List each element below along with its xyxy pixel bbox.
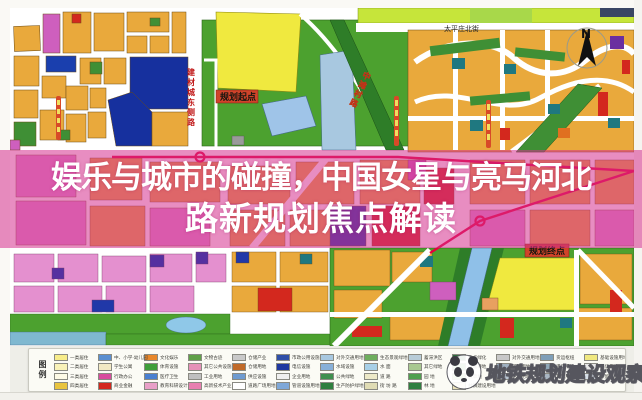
legend-label: 市政公用设施 bbox=[292, 354, 320, 360]
legend-column: 一类居住二类居住三类居住四类居住 bbox=[54, 354, 95, 390]
title-banner: 娱乐与城市的碰撞，中国女星与亮马河北 路新规划焦点解读 bbox=[0, 150, 642, 248]
legend-item: 管道设施用地 bbox=[276, 382, 317, 390]
legend-item: 三类居住 bbox=[54, 373, 95, 381]
legend-item: 供应设施 bbox=[232, 373, 273, 381]
legend-label: 水域设施 bbox=[336, 364, 354, 370]
legend-column: 蓄滞洪区其它绿地园 地林 地 bbox=[408, 354, 449, 390]
legend-label: 文物古迹 bbox=[204, 354, 222, 360]
legend-item: 行政办公 bbox=[98, 373, 141, 381]
legend-swatch bbox=[98, 363, 112, 371]
legend-swatch bbox=[408, 354, 422, 362]
legend-item: 公共绿地 bbox=[320, 373, 361, 381]
legend-label: 管道设施用地 bbox=[292, 383, 320, 389]
watermark-text: 地铁规划建设观察 bbox=[484, 358, 642, 387]
legend-item: 生态景观绿地 bbox=[364, 354, 405, 362]
legend-swatch bbox=[98, 354, 112, 362]
legend-label: 仓储产业 bbox=[248, 354, 266, 360]
legend-item: 体育设施 bbox=[144, 363, 185, 371]
legend-label: 其它公共设施 bbox=[204, 364, 232, 370]
legend-item: 水域设施 bbox=[320, 363, 361, 371]
legend-swatch bbox=[98, 382, 112, 390]
legend-swatch bbox=[188, 382, 202, 390]
legend-label: 学生公寓 bbox=[114, 364, 132, 370]
legend-swatch bbox=[276, 373, 290, 381]
start-point-label: 规划起点 bbox=[220, 91, 256, 103]
legend-swatch bbox=[144, 382, 158, 390]
legend-column: 市政公用设施电信设施企业用地管道设施用地 bbox=[276, 354, 317, 390]
legend-label: 工业用地 bbox=[204, 373, 222, 379]
road-jiancai-label: 建材城东侧路 bbox=[186, 67, 196, 128]
legend-item: 医疗卫生 bbox=[144, 373, 185, 381]
legend-swatch bbox=[364, 354, 378, 362]
legend-label: 道 路 bbox=[380, 373, 391, 379]
map-parcels-top-right bbox=[408, 30, 634, 152]
legend-swatch bbox=[54, 373, 68, 381]
legend-swatch bbox=[54, 354, 68, 362]
legend-label: 商业金融 bbox=[114, 383, 132, 389]
legend-swatch bbox=[408, 363, 422, 371]
legend-swatch bbox=[232, 354, 246, 362]
legend-item: 林 地 bbox=[408, 382, 449, 390]
legend-item: 四类居住 bbox=[54, 382, 95, 390]
legend-swatch bbox=[54, 382, 68, 390]
legend-label: 中、小学·幼儿园 bbox=[114, 354, 148, 360]
legend-label: 供应设施 bbox=[248, 373, 266, 379]
legend-swatch bbox=[98, 373, 112, 381]
legend-swatch bbox=[320, 354, 334, 362]
legend-column: 对外交通用地水域设施公共绿地生产防护绿地 bbox=[320, 354, 361, 390]
legend-item: 工业用地 bbox=[188, 373, 229, 381]
legend-item: 教育科研设计 bbox=[144, 382, 185, 390]
legend-swatch bbox=[364, 373, 378, 381]
legend-label: 生产防护绿地 bbox=[336, 383, 364, 389]
legend-item: 文物古迹 bbox=[188, 354, 229, 362]
legend-swatch bbox=[320, 373, 334, 381]
legend-swatch bbox=[364, 382, 378, 390]
watermark: 地铁规划建设观察 bbox=[444, 352, 642, 392]
legend-item: 二类居住 bbox=[54, 363, 95, 371]
map-parcels-bottom-middle bbox=[232, 252, 328, 312]
watermark-logo-icon bbox=[444, 352, 484, 392]
street-taipingzhuang-label: 太平庄北街 bbox=[444, 24, 479, 33]
legend-swatch bbox=[54, 363, 68, 371]
legend-item: 文化娱乐 bbox=[144, 354, 185, 362]
legend-item: 其它绿地 bbox=[408, 363, 449, 371]
legend-swatch bbox=[364, 363, 378, 371]
legend-swatch bbox=[188, 373, 202, 381]
legend-label: 高新技术产业 bbox=[204, 383, 232, 389]
legend-swatch bbox=[276, 382, 290, 390]
legend-item: 街 坊 路 bbox=[364, 382, 405, 390]
legend-label: 林 地 bbox=[424, 383, 435, 389]
legend-swatch bbox=[276, 363, 290, 371]
legend-item: 道路广场用地 bbox=[232, 382, 273, 390]
legend-label: 医疗卫生 bbox=[160, 373, 178, 379]
legend-item: 高新技术产业 bbox=[188, 382, 229, 390]
scan-margin-bottom bbox=[0, 392, 642, 400]
legend-label: 生态景观绿地 bbox=[380, 354, 408, 360]
legend-label: 一类居住 bbox=[70, 354, 88, 360]
title-line-1: 娱乐与城市的碰撞，中国女星与亮马河北 bbox=[51, 158, 591, 198]
legend-label: 企业用地 bbox=[292, 373, 310, 379]
legend-label: 仓储用地 bbox=[248, 364, 266, 370]
legend-label: 对外交通用地 bbox=[336, 354, 364, 360]
legend-item: 蓄滞洪区 bbox=[408, 354, 449, 362]
legend-title: 图例 bbox=[37, 360, 48, 380]
legend-label: 蓄滞洪区 bbox=[424, 354, 442, 360]
legend-label: 道路广场用地 bbox=[248, 383, 276, 389]
legend-swatch bbox=[188, 354, 202, 362]
legend-swatch bbox=[408, 373, 422, 381]
legend-label: 电信设施 bbox=[292, 364, 310, 370]
legend-label: 其它绿地 bbox=[424, 364, 442, 370]
map-parcels-bottom-right bbox=[330, 248, 634, 346]
legend-label: 三类居住 bbox=[70, 373, 88, 379]
legend-label: 文化娱乐 bbox=[160, 354, 178, 360]
legend-swatch bbox=[188, 363, 202, 371]
legend-item: 道 路 bbox=[364, 373, 405, 381]
legend-item: 电信设施 bbox=[276, 363, 317, 371]
legend-label: 教育科研设计 bbox=[160, 383, 188, 389]
legend-item: 其它公共设施 bbox=[188, 363, 229, 371]
legend-label: 四类居住 bbox=[70, 383, 88, 389]
legend-column: 生态景观绿地水 面道 路街 坊 路 bbox=[364, 354, 405, 390]
legend-item: 一类居住 bbox=[54, 354, 95, 362]
legend-column: 中、小学·幼儿园学生公寓行政办公商业金融 bbox=[98, 354, 141, 390]
legend-label: 行政办公 bbox=[114, 373, 132, 379]
title-line-2: 路新规划焦点解读 bbox=[185, 198, 457, 240]
legend-item: 企业用地 bbox=[276, 373, 317, 381]
legend-swatch bbox=[232, 363, 246, 371]
legend-column: 文物古迹其它公共设施工业用地高新技术产业 bbox=[188, 354, 229, 390]
legend-item: 对外交通用地 bbox=[320, 354, 361, 362]
scan-margin-top bbox=[0, 0, 642, 8]
legend-item: 仓储用地 bbox=[232, 363, 273, 371]
legend-label: 街 坊 路 bbox=[380, 383, 397, 389]
legend-label: 公共绿地 bbox=[336, 373, 354, 379]
legend-swatch bbox=[144, 373, 158, 381]
screenshot-stage: 规划起点 规划终点 太平庄北街 建材城东侧路 中滩村路 N 娱乐与城市的碰撞，中… bbox=[0, 0, 642, 400]
legend-column: 文化娱乐体育设施医疗卫生教育科研设计 bbox=[144, 354, 185, 390]
legend-item: 中、小学·幼儿园 bbox=[98, 354, 141, 362]
legend-item: 商业金融 bbox=[98, 382, 141, 390]
legend-column: 仓储产业仓储用地供应设施道路广场用地 bbox=[232, 354, 273, 390]
legend-swatch bbox=[232, 382, 246, 390]
legend-swatch bbox=[232, 373, 246, 381]
legend-swatch bbox=[320, 363, 334, 371]
legend-swatch bbox=[408, 382, 422, 390]
legend-label: 二类居住 bbox=[70, 364, 88, 370]
legend-label: 园 地 bbox=[424, 373, 435, 379]
legend-swatch bbox=[320, 382, 334, 390]
legend-item: 市政公用设施 bbox=[276, 354, 317, 362]
legend-label: 水 面 bbox=[380, 364, 391, 370]
legend-swatch bbox=[276, 354, 290, 362]
legend-item: 仓储产业 bbox=[232, 354, 273, 362]
legend-swatch bbox=[144, 363, 158, 371]
legend-item: 水 面 bbox=[364, 363, 405, 371]
legend-item: 学生公寓 bbox=[98, 363, 141, 371]
legend-label: 体育设施 bbox=[160, 364, 178, 370]
legend-item: 园 地 bbox=[408, 373, 449, 381]
legend-item: 生产防护绿地 bbox=[320, 382, 361, 390]
